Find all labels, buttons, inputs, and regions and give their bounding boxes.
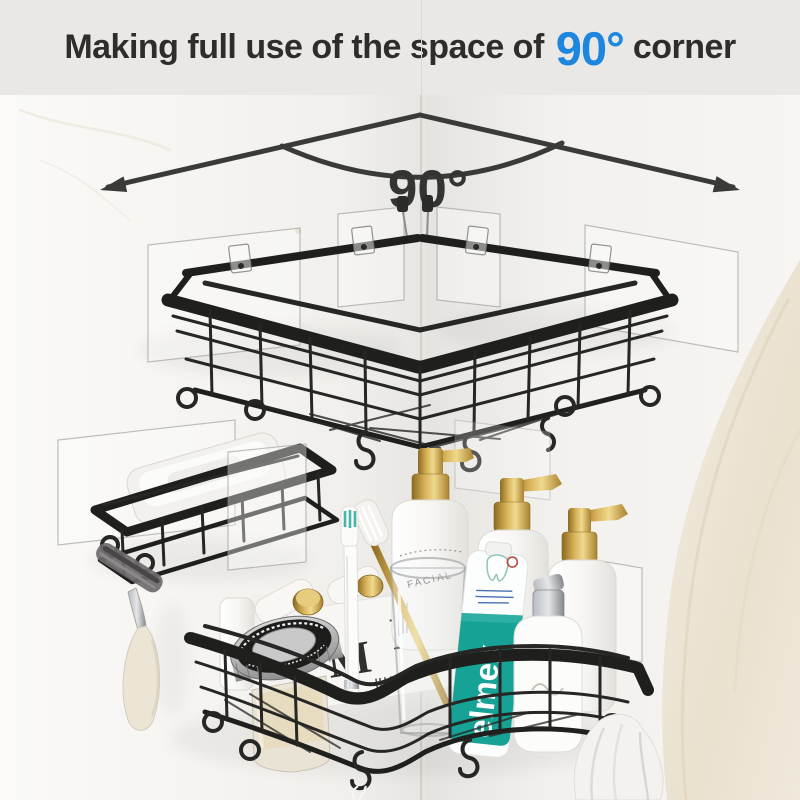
adhesive-pad [437, 207, 500, 307]
adhesive-pad [338, 207, 404, 307]
adhesive-pad [228, 444, 306, 570]
title-banner: Making full use of the space of 90° corn… [0, 0, 800, 95]
title-prefix: Making full use of the space of [64, 28, 543, 67]
product-image: 90° [0, 0, 800, 800]
wall-seam-line [421, 0, 422, 95]
title-suffix: corner [633, 28, 736, 67]
scene-svg: 90° [0, 0, 800, 800]
title-angle-highlight: 90° [556, 1, 624, 96]
